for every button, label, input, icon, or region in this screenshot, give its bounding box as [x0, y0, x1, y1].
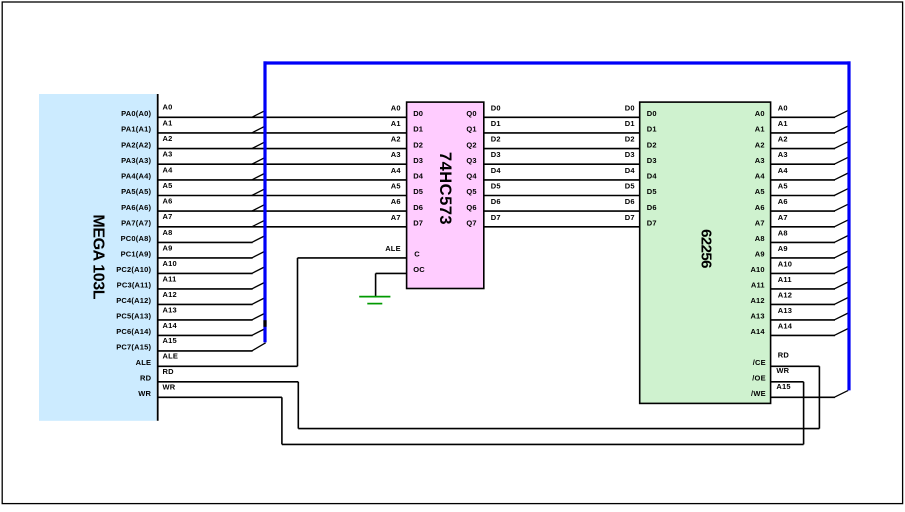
svg-text:D2: D2 — [491, 135, 501, 144]
svg-text:D6: D6 — [625, 197, 635, 206]
svg-text:ALE: ALE — [163, 352, 179, 361]
svg-text:A0: A0 — [391, 103, 401, 112]
svg-text:A4: A4 — [755, 172, 766, 181]
svg-text:A1: A1 — [391, 119, 401, 128]
svg-text:PC1(A9): PC1(A9) — [121, 250, 152, 259]
svg-text:A9: A9 — [163, 243, 173, 252]
svg-text:PC4(A12): PC4(A12) — [116, 296, 151, 305]
svg-text:D7: D7 — [625, 213, 635, 222]
svg-text:A3: A3 — [163, 150, 173, 159]
svg-text:A4: A4 — [391, 166, 402, 175]
svg-text:A0: A0 — [755, 109, 765, 118]
svg-text:OC: OC — [413, 265, 425, 274]
svg-text:D0: D0 — [625, 103, 635, 112]
svg-text:PC5(A13): PC5(A13) — [116, 312, 151, 321]
svg-text:PC6(A14): PC6(A14) — [116, 327, 151, 336]
svg-text:Q6: Q6 — [466, 203, 476, 212]
svg-text:PA0(A0): PA0(A0) — [121, 109, 151, 118]
svg-text:D4: D4 — [647, 172, 658, 181]
svg-text:62256: 62256 — [698, 229, 715, 268]
svg-text:A3: A3 — [755, 156, 765, 165]
svg-text:A5: A5 — [778, 182, 788, 191]
svg-text:A1: A1 — [755, 125, 765, 134]
svg-text:PC2(A10): PC2(A10) — [116, 265, 151, 274]
svg-text:Q7: Q7 — [466, 219, 476, 228]
svg-text:A1: A1 — [778, 119, 788, 128]
svg-text:A8: A8 — [778, 228, 788, 237]
svg-text:D3: D3 — [647, 156, 657, 165]
svg-text:Q3: Q3 — [466, 156, 476, 165]
svg-text:D0: D0 — [647, 109, 657, 118]
svg-text:A13: A13 — [778, 306, 792, 315]
svg-text:PA3(A3): PA3(A3) — [121, 156, 151, 165]
svg-text:D0: D0 — [491, 103, 501, 112]
svg-text:D5: D5 — [647, 187, 657, 196]
svg-text:D6: D6 — [413, 203, 423, 212]
svg-text:A12: A12 — [163, 290, 177, 299]
svg-text:RD: RD — [163, 367, 175, 376]
svg-text:A15: A15 — [163, 336, 177, 345]
svg-text:74HC573: 74HC573 — [436, 152, 454, 225]
svg-text:/OE: /OE — [752, 374, 766, 383]
svg-text:D2: D2 — [647, 140, 657, 149]
svg-text:Q2: Q2 — [466, 140, 476, 149]
svg-text:C: C — [414, 250, 420, 259]
svg-text:Q0: Q0 — [466, 109, 476, 118]
svg-text:D5: D5 — [413, 187, 423, 196]
svg-text:WR: WR — [163, 383, 176, 392]
svg-text:D1: D1 — [413, 125, 423, 134]
svg-text:RD: RD — [140, 374, 152, 383]
svg-text:A9: A9 — [755, 250, 765, 259]
svg-text:PA1(A1): PA1(A1) — [121, 125, 151, 134]
svg-text:PA4(A4): PA4(A4) — [121, 172, 151, 181]
svg-text:A7: A7 — [778, 213, 788, 222]
svg-text:D1: D1 — [647, 125, 657, 134]
svg-text:PA5(A5): PA5(A5) — [121, 187, 151, 196]
svg-text:PC0(A8): PC0(A8) — [121, 234, 152, 243]
svg-text:A10: A10 — [163, 259, 177, 268]
svg-text:D7: D7 — [647, 219, 657, 228]
svg-text:ALE: ALE — [385, 244, 401, 253]
svg-text:D3: D3 — [625, 150, 635, 159]
svg-text:D4: D4 — [413, 172, 424, 181]
svg-text:A4: A4 — [163, 165, 174, 174]
svg-text:A9: A9 — [778, 244, 788, 253]
svg-text:A10: A10 — [750, 265, 764, 274]
svg-text:MEGA 103L: MEGA 103L — [89, 214, 106, 299]
svg-text:PA7(A7): PA7(A7) — [121, 219, 151, 228]
svg-text:A14: A14 — [163, 321, 178, 330]
svg-text:D0: D0 — [413, 109, 423, 118]
svg-text:PC3(A11): PC3(A11) — [117, 281, 152, 290]
svg-text:A8: A8 — [755, 234, 765, 243]
svg-text:A6: A6 — [755, 203, 765, 212]
svg-text:A11: A11 — [163, 274, 177, 283]
svg-text:Q1: Q1 — [466, 125, 476, 134]
svg-text:D3: D3 — [491, 150, 501, 159]
svg-text:D3: D3 — [413, 156, 423, 165]
svg-text:A5: A5 — [163, 181, 173, 190]
svg-text:PA2(A2): PA2(A2) — [121, 140, 151, 149]
svg-text:A15: A15 — [776, 382, 790, 391]
svg-text:Q4: Q4 — [466, 172, 477, 181]
svg-text:A7: A7 — [755, 219, 765, 228]
svg-text:A5: A5 — [755, 187, 765, 196]
svg-text:A2: A2 — [163, 134, 173, 143]
svg-text:PC7(A15): PC7(A15) — [116, 343, 151, 352]
svg-text:D4: D4 — [491, 166, 502, 175]
svg-text:D6: D6 — [491, 197, 501, 206]
svg-text:A12: A12 — [750, 296, 764, 305]
svg-text:D1: D1 — [625, 119, 635, 128]
svg-text:D7: D7 — [413, 219, 423, 228]
svg-text:A14: A14 — [778, 321, 793, 330]
svg-text:A0: A0 — [163, 103, 173, 112]
svg-text:D2: D2 — [413, 140, 423, 149]
svg-text:A3: A3 — [391, 150, 401, 159]
svg-text:D2: D2 — [625, 135, 635, 144]
svg-text:D5: D5 — [625, 182, 635, 191]
svg-text:A5: A5 — [391, 182, 401, 191]
svg-text:A6: A6 — [391, 197, 401, 206]
svg-text:A13: A13 — [163, 305, 177, 314]
svg-text:D4: D4 — [625, 166, 636, 175]
svg-text:A2: A2 — [778, 135, 788, 144]
svg-text:A3: A3 — [778, 150, 788, 159]
svg-text:A8: A8 — [163, 228, 173, 237]
svg-text:WR: WR — [138, 389, 151, 398]
svg-text:ALE: ALE — [136, 358, 152, 367]
svg-text:RD: RD — [778, 350, 790, 359]
svg-text:A11: A11 — [751, 281, 765, 290]
svg-text:A4: A4 — [778, 166, 789, 175]
svg-text:A6: A6 — [778, 197, 788, 206]
svg-text:A6: A6 — [163, 197, 173, 206]
svg-text:D7: D7 — [491, 213, 501, 222]
svg-text:/CE: /CE — [753, 358, 766, 367]
svg-text:A10: A10 — [778, 259, 792, 268]
svg-text:A14: A14 — [750, 327, 765, 336]
svg-text:D6: D6 — [647, 203, 657, 212]
svg-text:A11: A11 — [778, 275, 792, 284]
svg-text:PA6(A6): PA6(A6) — [121, 203, 151, 212]
svg-text:A7: A7 — [391, 213, 401, 222]
svg-text:D1: D1 — [491, 119, 501, 128]
svg-text:A0: A0 — [778, 103, 788, 112]
svg-text:Q5: Q5 — [466, 187, 476, 196]
svg-text:A1: A1 — [163, 118, 173, 127]
svg-text:A12: A12 — [778, 290, 792, 299]
svg-text:A13: A13 — [750, 312, 764, 321]
svg-text:A2: A2 — [755, 140, 765, 149]
svg-text:/WE: /WE — [751, 389, 766, 398]
svg-text:WR: WR — [776, 366, 789, 375]
svg-text:A2: A2 — [391, 135, 401, 144]
svg-text:A7: A7 — [163, 212, 173, 221]
svg-text:D5: D5 — [491, 182, 501, 191]
